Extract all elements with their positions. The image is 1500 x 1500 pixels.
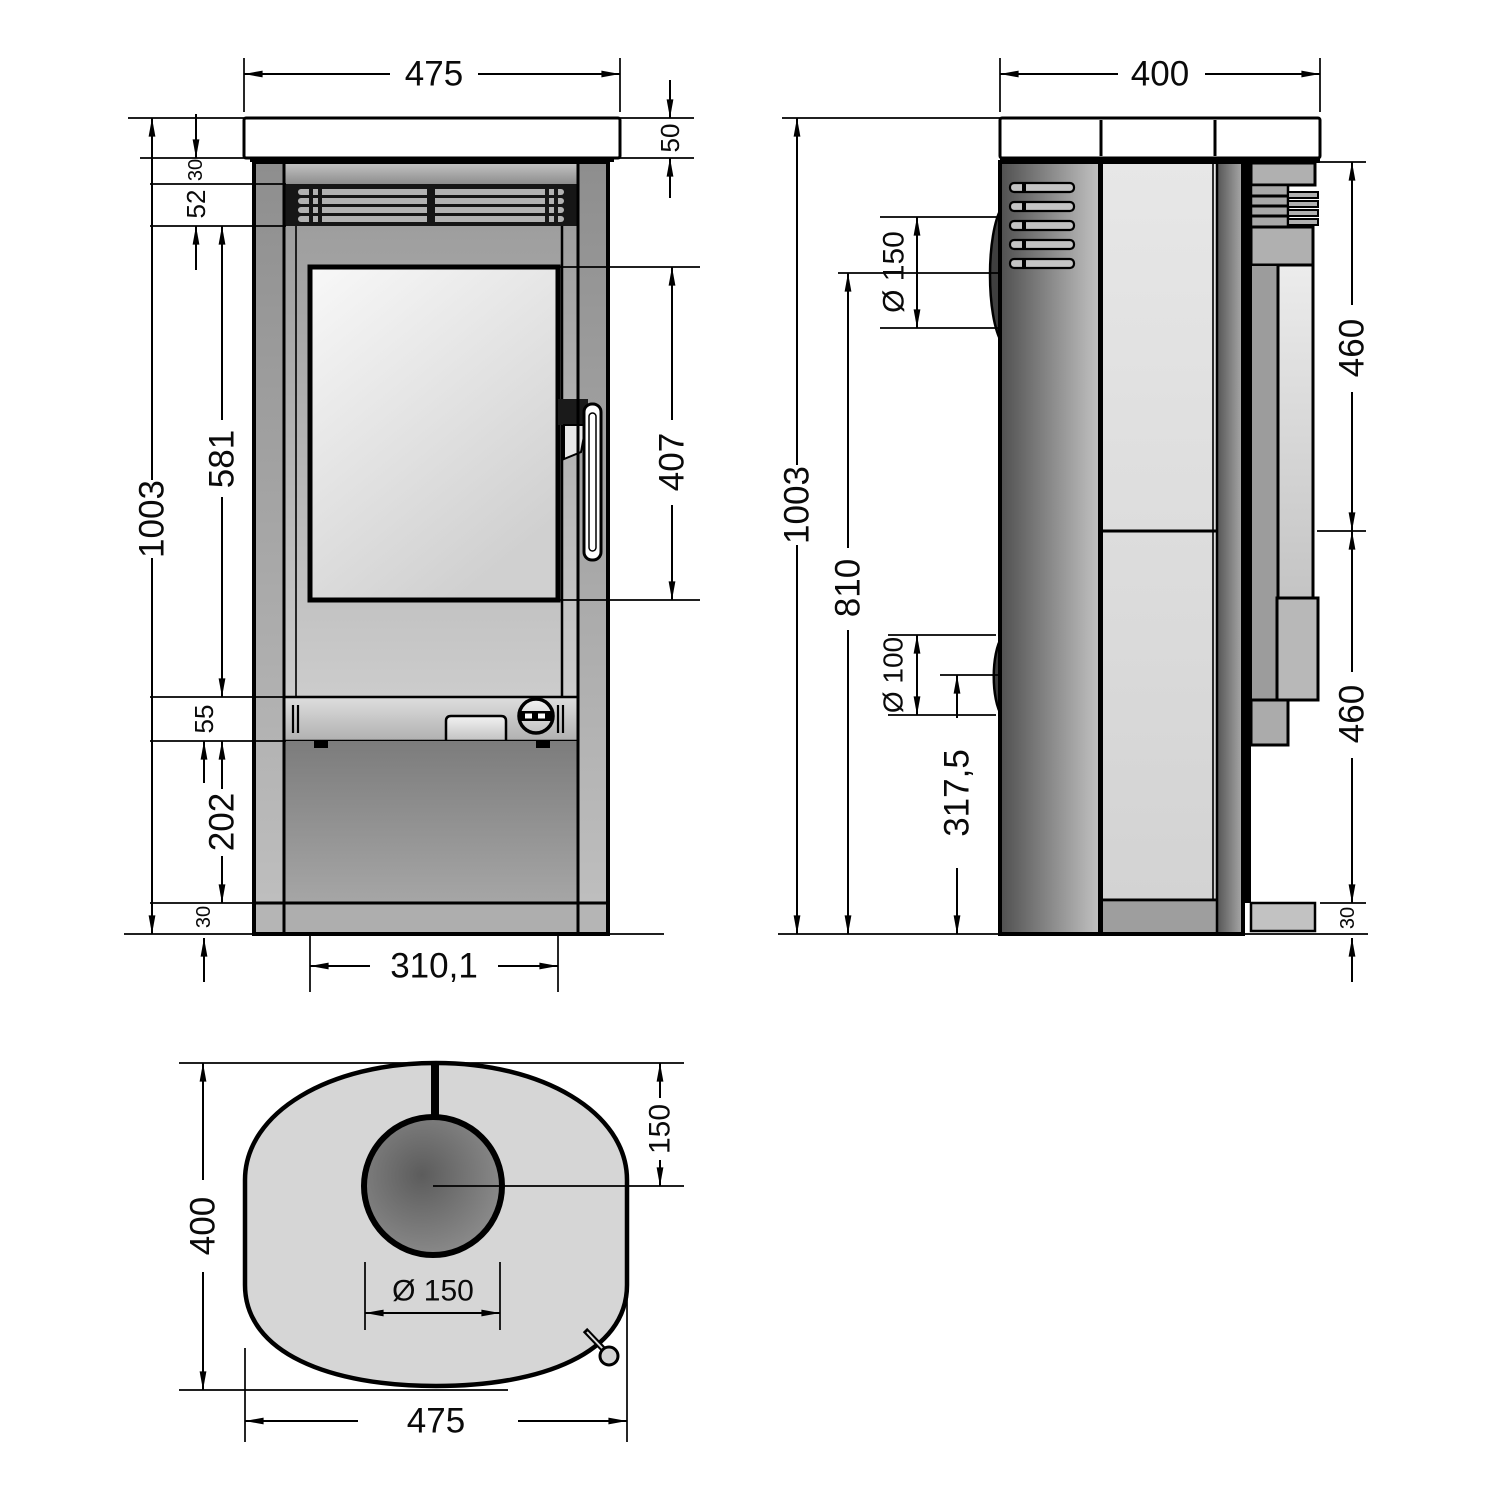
front-left-pillar bbox=[254, 162, 284, 934]
control-band bbox=[284, 697, 578, 741]
ash-drawer-handle bbox=[446, 716, 506, 741]
middle-column bbox=[1103, 162, 1216, 934]
dim-flue-diameter: Ø 150 bbox=[878, 231, 911, 313]
dim-flue-height: 810 bbox=[829, 559, 868, 617]
dim-vent-band: 52 bbox=[181, 190, 211, 219]
dim-top-width: 475 bbox=[407, 1402, 465, 1441]
dim-upper-section: 460 bbox=[1333, 319, 1372, 377]
drawing-canvas: 475 50 30 52 581 1003 55 202 bbox=[0, 0, 1500, 1500]
dim-door-section: 581 bbox=[203, 430, 242, 488]
side-top-plate bbox=[1000, 118, 1320, 158]
dim-socket-diameter: Ø 100 bbox=[878, 637, 909, 713]
dim-flue-offset: 150 bbox=[644, 1104, 677, 1154]
dim-top-gap: 30 bbox=[185, 159, 207, 181]
right-foot bbox=[536, 741, 550, 748]
vent-grille bbox=[284, 184, 578, 226]
dim-front-width: 475 bbox=[405, 55, 463, 94]
side-view bbox=[778, 118, 1368, 934]
front-plinth-center bbox=[284, 903, 578, 934]
dim-glass-height: 407 bbox=[653, 433, 692, 491]
base-panel bbox=[284, 741, 578, 903]
door-glass bbox=[310, 267, 558, 600]
dim-top-plate: 50 bbox=[655, 124, 685, 153]
left-foot bbox=[314, 741, 328, 748]
dim-top-flue-diameter: Ø 150 bbox=[392, 1275, 474, 1308]
dim-lower-section: 460 bbox=[1333, 685, 1372, 743]
dim-depth: 400 bbox=[1131, 55, 1189, 94]
dim-side-plinth: 30 bbox=[1337, 907, 1359, 929]
side-door-cap bbox=[1251, 163, 1315, 185]
dim-base: 202 bbox=[203, 793, 242, 851]
dim-glass-width: 310,1 bbox=[390, 947, 478, 986]
dim-top-depth: 400 bbox=[184, 1197, 223, 1255]
side-plinth-middle bbox=[1103, 902, 1216, 934]
dim-side-height: 1003 bbox=[778, 466, 817, 544]
air-control-knob bbox=[519, 699, 553, 733]
side-door-assembly bbox=[1251, 163, 1318, 931]
stove-dimension-drawing: 475 50 30 52 581 1003 55 202 bbox=[0, 0, 1500, 1500]
dim-front-plinth: 30 bbox=[193, 906, 215, 928]
dim-socket-height: 317,5 bbox=[938, 749, 977, 837]
side-plinth-front bbox=[1251, 903, 1315, 931]
side-door-face bbox=[1278, 265, 1313, 598]
front-top-plate bbox=[244, 118, 620, 158]
top-view bbox=[245, 1063, 627, 1386]
dim-front-height: 1003 bbox=[133, 480, 172, 558]
front-top-band bbox=[284, 162, 578, 184]
dim-control-band: 55 bbox=[189, 705, 219, 734]
side-front-fins bbox=[1288, 192, 1318, 225]
back-column bbox=[1000, 162, 1098, 934]
front-column bbox=[1218, 162, 1243, 934]
